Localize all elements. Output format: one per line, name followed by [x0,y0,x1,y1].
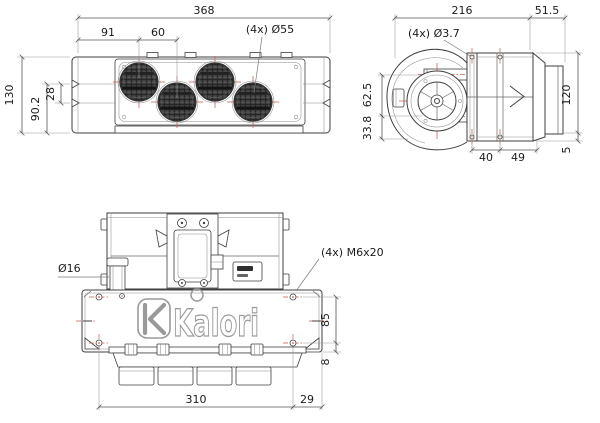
dim-label: 33.8 [361,116,374,141]
dim-vent1-offset: 91 [78,26,139,40]
dim-pitch-49: 49 [500,150,537,164]
dim-outlet-length: 51.5 [530,4,565,18]
dim-label: 368 [194,4,215,17]
dim-label: 120 [560,85,573,106]
dim-pitch-40: 40 [472,150,500,164]
side-view: 216 51.5 (4x) Ø3.7 62.5 33.8 [361,4,583,164]
dim-screw-spec: (4x) M6x20 [296,246,384,291]
drawing-page: 368 91 60 (4x) Ø55 130 90.2 [0,0,600,423]
top-view: 368 91 60 (4x) Ø55 130 90.2 [3,4,330,133]
bottom-tray [109,344,306,385]
dim-label: (4x) Ø55 [246,23,294,36]
dim-label: 29 [300,393,314,406]
upper-housing [101,213,289,289]
dim-label: 28 [44,87,57,101]
drawing-canvas: 368 91 60 (4x) Ø55 130 90.2 [0,0,600,423]
dim-vent-pitch: 60 [139,26,177,40]
pipe-fitting [107,258,128,291]
dim-overall-width: 368 [78,4,330,18]
dim-foot-5: 5 [560,133,578,154]
dim-edge-offset: 29 [293,393,322,407]
end-cap [533,53,545,141]
dim-label: 62.5 [361,83,374,108]
dim-label: 40 [479,151,493,164]
dim-label: 60 [151,26,165,39]
outlet-boxes [119,367,271,385]
dim-label: 216 [452,4,473,17]
dim-label: 90.2 [29,97,42,122]
bottom-strip [115,126,303,133]
mount-tab [185,53,196,58]
dim-label: 85 [319,313,332,327]
dim-label: 310 [186,393,207,406]
dim-label: Ø16 [58,262,81,275]
dim-label: 8 [319,359,332,366]
dim-height-33-8: 33.8 [361,116,382,141]
dim-label: 5 [560,147,573,154]
dim-mount-width: 310 [99,393,293,407]
blower-bracket [393,89,404,107]
dim-overall-depth: 130 [3,57,22,133]
dim-label: 51.5 [535,4,560,17]
dim-body-length: 216 [395,4,530,18]
dim-label: 49 [511,151,525,164]
nameplate [233,262,262,281]
heater-body-side [467,48,563,149]
logo-text: Kalori [173,302,259,345]
lower-panel: Kalori [76,289,328,352]
mount-tab [147,53,158,58]
dim-height-62-5: 62.5 [361,75,382,116]
dim-label: 130 [3,85,16,106]
dim-label: (4x) Ø3.7 [408,27,460,40]
mount-tab [281,53,292,58]
dim-label: (4x) M6x20 [321,246,384,259]
dim-label: 91 [101,26,115,39]
dim-notch-28: 28 [44,84,61,103]
front-view: Kalori [58,213,384,410]
